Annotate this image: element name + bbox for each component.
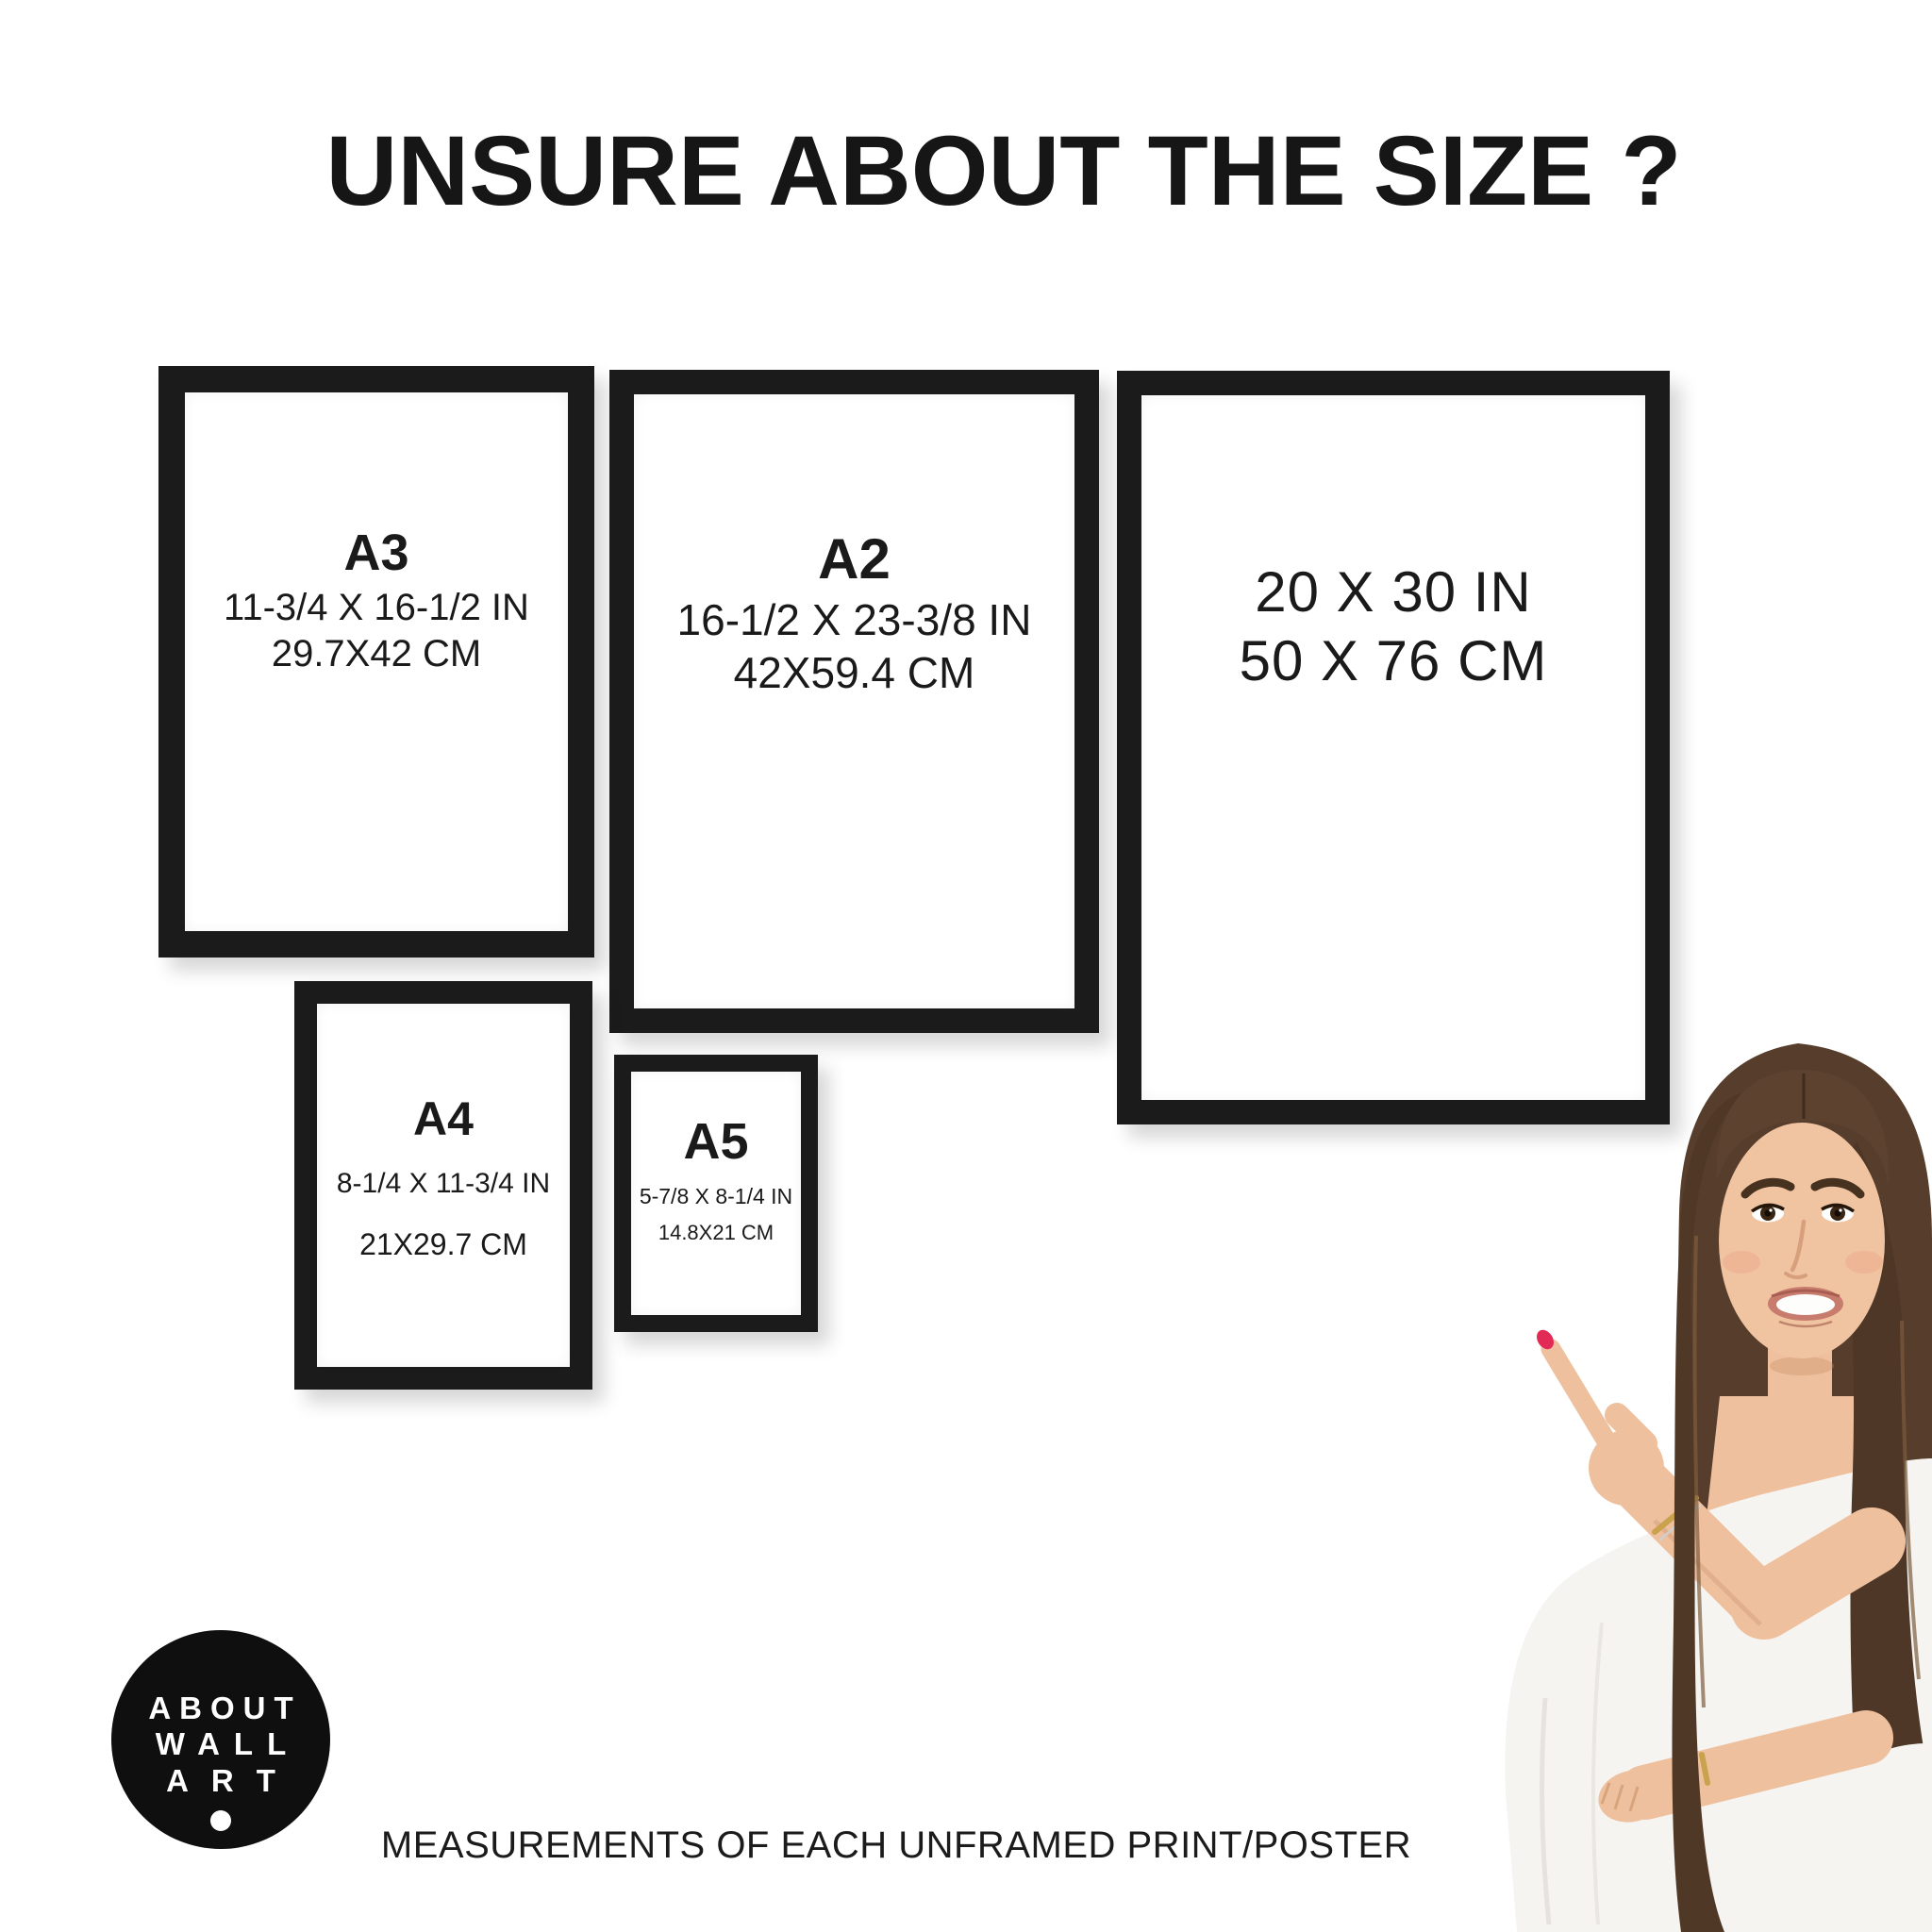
logo-dot [210,1810,231,1831]
size-name-a3: A3 [185,523,568,585]
frame-a4: A4 8-1/4 X 11-3/4 IN 21X29.7 CM [294,981,592,1390]
size-inches-a2: 16-1/2 X 23-3/8 IN [634,593,1074,646]
footer-caption: MEASUREMENTS OF EACH UNFRAMED PRINT/POST… [283,1824,1509,1867]
frame-a5-labels: A5 5-7/8 X 8-1/4 IN 14.8X21 CM [631,1111,801,1246]
logo-line-art: ART [111,1763,330,1799]
frame-20x30: 20 X 30 IN 50 X 76 CM [1117,371,1670,1124]
size-inches-20x30: 20 X 30 IN [1141,558,1645,626]
size-cm-a3: 29.7X42 CM [185,631,568,677]
brand-logo-text: ABOUT WALL ART [111,1630,330,1831]
frame-a3-labels: A3 11-3/4 X 16-1/2 IN 29.7X42 CM [185,523,568,676]
size-cm-a5: 14.8X21 CM [631,1221,801,1246]
logo-line-about: ABOUT [111,1690,330,1726]
model-photo [1460,1038,1932,1932]
frame-a4-labels: A4 8-1/4 X 11-3/4 IN 21X29.7 CM [317,1091,570,1263]
teeth [1776,1294,1835,1315]
size-name-a4: A4 [317,1091,570,1148]
size-cm-a2: 42X59.4 CM [634,646,1074,699]
size-name-a5: A5 [631,1111,801,1174]
size-guide-poster: UNSURE ABOUT THE SIZE ? A3 11-3/4 X 16-1… [0,0,1932,1932]
frame-20x30-labels: 20 X 30 IN 50 X 76 CM [1141,558,1645,695]
frame-a2-labels: A2 16-1/2 X 23-3/8 IN 42X59.4 CM [634,525,1074,699]
pointing-finger [1551,1349,1611,1449]
size-inches-a4: 8-1/4 X 11-3/4 IN [317,1167,570,1202]
frame-a2: A2 16-1/2 X 23-3/8 IN 42X59.4 CM [609,370,1099,1033]
size-inches-a5: 5-7/8 X 8-1/4 IN [631,1183,801,1209]
size-name-a2: A2 [634,525,1074,593]
size-cm-20x30: 50 X 76 CM [1141,626,1645,695]
frame-a5: A5 5-7/8 X 8-1/4 IN 14.8X21 CM [614,1055,818,1332]
logo-line-wall: WALL [111,1726,330,1762]
brand-logo: ABOUT WALL ART [111,1630,330,1849]
size-inches-a3: 11-3/4 X 16-1/2 IN [185,585,568,631]
frame-a3: A3 11-3/4 X 16-1/2 IN 29.7X42 CM [158,366,594,958]
size-cm-a4: 21X29.7 CM [317,1226,570,1263]
page-title: UNSURE ABOUT THE SIZE ? [38,115,1932,228]
